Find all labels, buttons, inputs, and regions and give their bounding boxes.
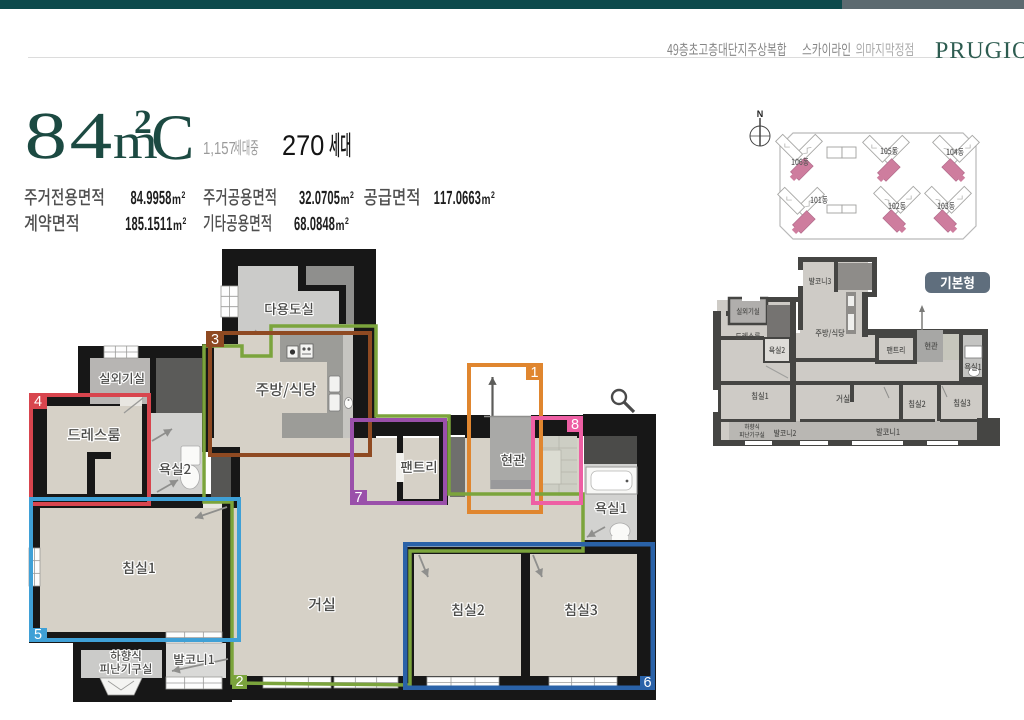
svg-text:2: 2 [235,674,243,690]
svg-text:1: 1 [530,365,538,381]
svg-text:7: 7 [354,490,362,506]
svg-text:5: 5 [34,627,42,643]
svg-text:N: N [757,109,764,119]
svg-text:8: 8 [571,417,579,433]
svg-text:6: 6 [643,675,651,691]
svg-text:4: 4 [34,394,42,410]
svg-text:3: 3 [211,332,219,348]
